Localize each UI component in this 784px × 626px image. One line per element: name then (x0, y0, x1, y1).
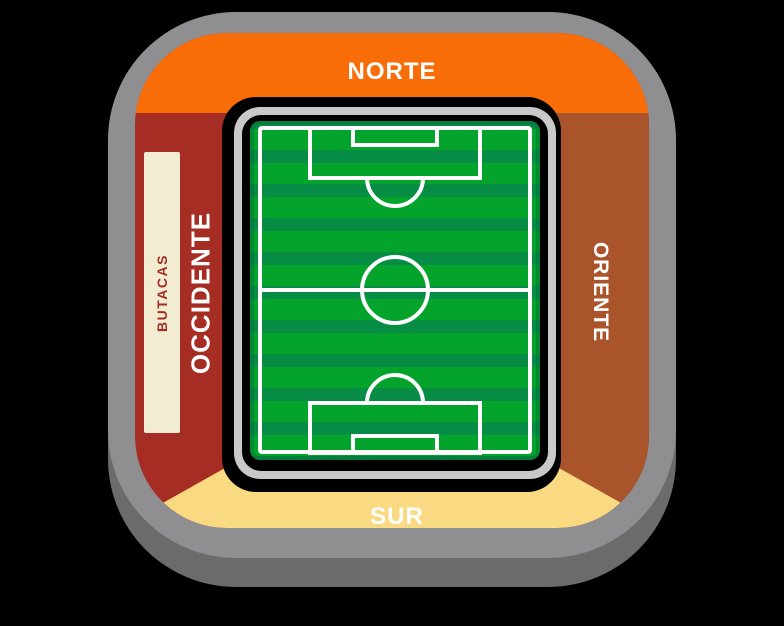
soccer-field-icon (250, 121, 540, 460)
section-label-occidente: OCCIDENTE (186, 212, 217, 374)
stadium-map: NORTE SUR OCCIDENTE ORIENTE BUTACAS (0, 0, 784, 626)
section-label-oriente: ORIENTE (588, 242, 612, 342)
section-label-butacas: BUTACAS (154, 254, 170, 332)
penalty-arc-top (367, 178, 423, 206)
section-label-norte: NORTE (348, 58, 437, 86)
goal-box-top (353, 128, 437, 145)
penalty-arc-bottom (367, 375, 423, 403)
penalty-box-bottom (310, 403, 480, 453)
penalty-box-top (310, 128, 480, 178)
section-label-sur: SUR (370, 503, 424, 531)
pitch-markings (250, 121, 540, 460)
